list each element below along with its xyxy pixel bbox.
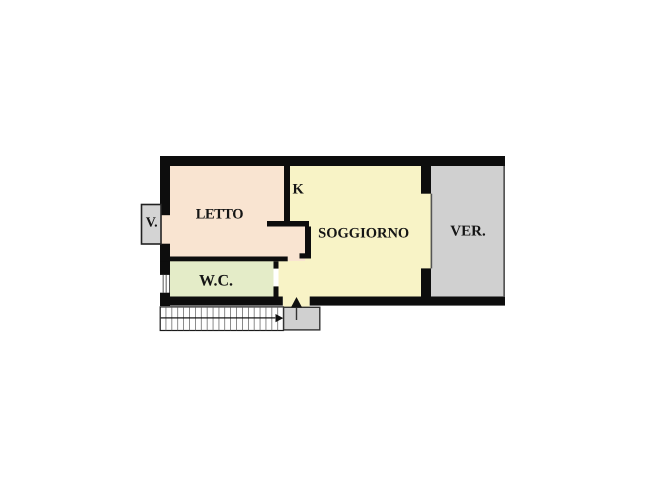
svg-text:LETTO: LETTO <box>196 207 243 223</box>
svg-text:K: K <box>293 181 305 197</box>
svg-text:W.C.: W.C. <box>199 272 233 289</box>
svg-text:SOGGIORNO: SOGGIORNO <box>318 226 409 242</box>
svg-text:VER.: VER. <box>450 224 486 240</box>
svg-text:V.: V. <box>146 216 158 231</box>
